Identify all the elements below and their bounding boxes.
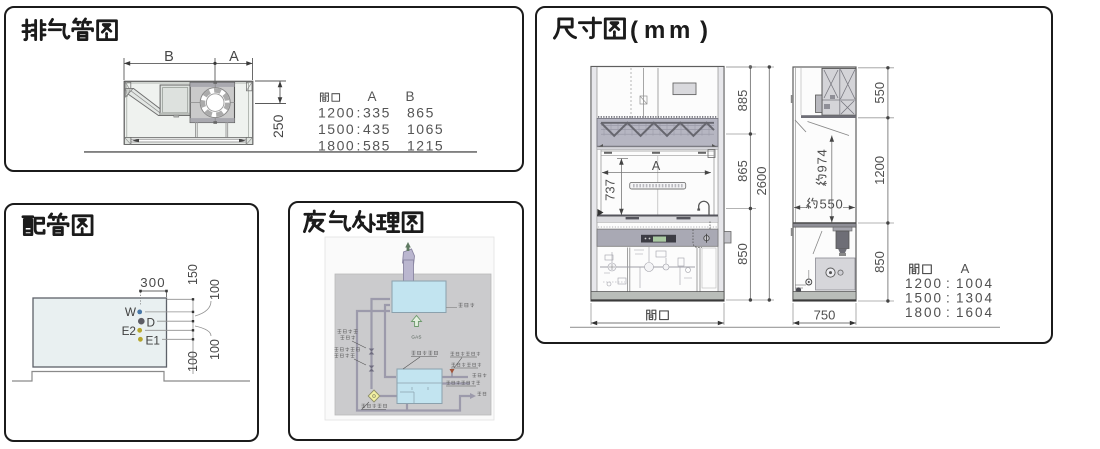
svg-text:1200:1004: 1200:1004 [905, 276, 994, 291]
svg-text:1500:4351065: 1500:4351065 [318, 121, 444, 137]
svg-text:250: 250 [270, 114, 286, 138]
svg-text:1800:1604: 1800:1604 [905, 305, 994, 320]
svg-text:300: 300 [140, 275, 166, 290]
svg-text:GAS: GAS [411, 335, 421, 340]
svg-text:550: 550 [872, 82, 887, 104]
svg-text:750: 750 [814, 308, 836, 323]
svg-text:100: 100 [208, 279, 222, 300]
svg-text:E2: E2 [122, 324, 136, 338]
svg-text:1800:5851215: 1800:5851215 [318, 138, 444, 154]
svg-text:100: 100 [208, 339, 222, 360]
svg-text:(mm): (mm) [630, 17, 708, 44]
svg-text:A: A [652, 159, 661, 173]
svg-text:737: 737 [603, 179, 618, 201]
svg-text:550: 550 [820, 197, 844, 212]
svg-text:D: D [147, 316, 156, 330]
svg-text:850: 850 [872, 251, 887, 273]
svg-text:100: 100 [186, 351, 200, 372]
svg-text:A: A [961, 261, 970, 276]
svg-text:A: A [367, 89, 376, 104]
svg-text:974: 974 [815, 148, 830, 172]
svg-text:2600: 2600 [754, 167, 769, 196]
svg-text:A: A [229, 49, 239, 65]
svg-text:150: 150 [186, 264, 200, 285]
svg-text:W: W [125, 305, 137, 319]
svg-text:E1: E1 [146, 334, 160, 348]
svg-text:1200:335865: 1200:335865 [318, 105, 435, 121]
svg-text:885: 885 [735, 90, 750, 112]
svg-text:B: B [164, 49, 174, 65]
svg-text:865: 865 [735, 160, 750, 182]
svg-text:1200: 1200 [872, 156, 887, 185]
svg-text:850: 850 [735, 243, 750, 265]
svg-text:B: B [405, 89, 414, 104]
svg-text:1500:1304: 1500:1304 [905, 291, 994, 306]
